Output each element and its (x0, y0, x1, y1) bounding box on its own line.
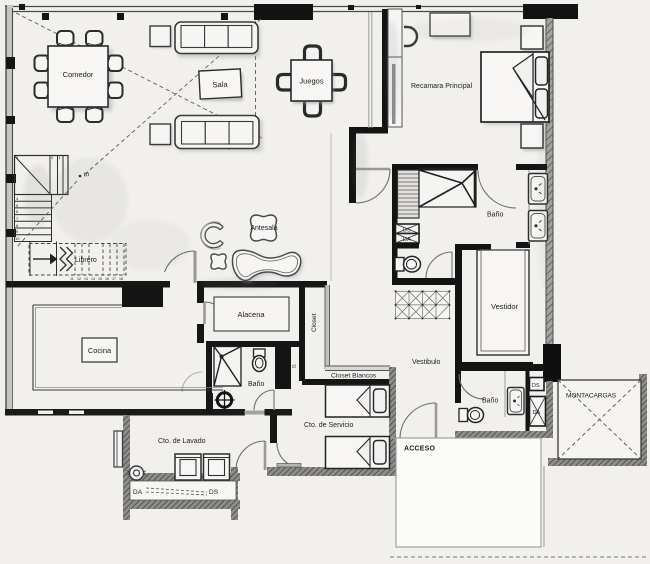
svg-text:DA: DA (533, 410, 541, 416)
svg-text:16: 16 (105, 277, 109, 281)
svg-text:cl: cl (292, 364, 296, 370)
svg-text:10: 10 (15, 236, 20, 241)
svg-text:Cto. de Lavado: Cto. de Lavado (158, 438, 206, 445)
svg-text:DS: DS (403, 228, 411, 234)
svg-text:Antesala: Antesala (250, 225, 277, 232)
svg-text:Cocina: Cocina (88, 346, 112, 355)
svg-text:Librero: Librero (75, 257, 97, 264)
svg-text:Comedor: Comedor (63, 70, 94, 79)
svg-text:Baño: Baño (248, 381, 264, 388)
svg-text:18: 18 (119, 277, 123, 281)
svg-text:Baño: Baño (482, 398, 498, 405)
svg-text:DS: DS (532, 383, 540, 389)
svg-text:Cto. de Servicio: Cto. de Servicio (304, 422, 354, 429)
svg-text:12: 12 (77, 277, 81, 281)
svg-text:17: 17 (112, 277, 116, 281)
svg-text:13: 13 (84, 277, 88, 281)
svg-text:Closet: Closet (311, 313, 318, 332)
svg-text:DA: DA (133, 489, 143, 496)
svg-text:Vestibulo: Vestibulo (412, 359, 441, 366)
svg-text:15: 15 (98, 277, 102, 281)
svg-text:Vestidor: Vestidor (491, 302, 519, 311)
svg-text:Alacena: Alacena (237, 310, 265, 319)
svg-text:Sala: Sala (212, 80, 228, 90)
svg-text:ACCESO: ACCESO (404, 446, 436, 453)
svg-text:MONTACARGAS: MONTACARGAS (566, 393, 617, 400)
svg-text:DA: DA (403, 237, 411, 243)
svg-text:Recamara Principal: Recamara Principal (411, 83, 473, 90)
svg-text:Closet Blancos: Closet Blancos (331, 373, 377, 380)
svg-text:Baño: Baño (487, 212, 503, 219)
svg-text:Juegos: Juegos (299, 77, 323, 86)
svg-text:DS: DS (209, 489, 219, 496)
svg-text:14: 14 (91, 277, 95, 281)
svg-text:11: 11 (70, 277, 74, 281)
